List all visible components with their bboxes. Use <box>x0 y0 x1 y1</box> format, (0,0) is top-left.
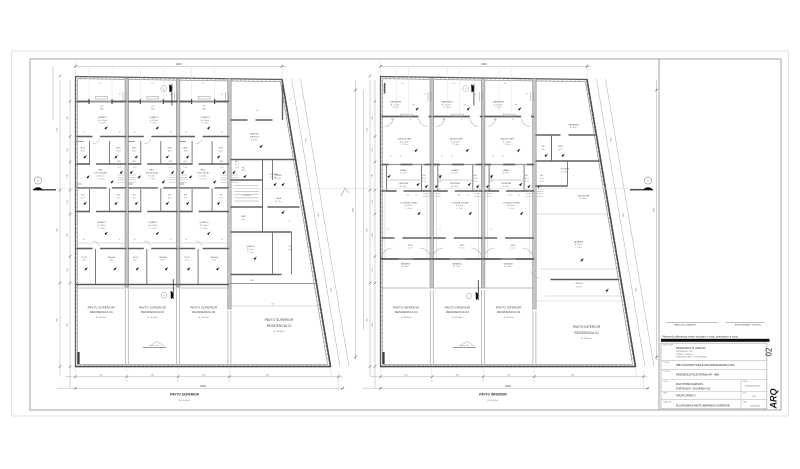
svg-text:DESP: DESP <box>558 146 564 148</box>
svg-text:206: 206 <box>412 105 415 107</box>
svg-text:ESTAR: ESTAR <box>275 174 282 177</box>
svg-text:PROJETO: PROJETO <box>663 371 671 373</box>
svg-text:GARAGEM: GARAGEM <box>493 101 504 104</box>
svg-text:*Havendo diferença entre escal: *Havendo diferença entre escalas e cota,… <box>662 334 739 338</box>
svg-text:A: 4,60m²: A: 4,60m² <box>199 175 207 178</box>
svg-text:90: 90 <box>526 94 528 96</box>
svg-text:150: 150 <box>504 83 507 85</box>
svg-text:SERVIÇO: SERVIÇO <box>250 137 259 139</box>
svg-text:26: 26 <box>388 229 390 231</box>
svg-text:P: 2,60m: P: 2,60m <box>98 228 106 230</box>
svg-text:150: 150 <box>452 83 455 85</box>
svg-text:A: 4,60m²: A: 4,60m² <box>97 175 105 178</box>
svg-text:QUARTO: QUARTO <box>199 221 209 224</box>
svg-text:36: 36 <box>502 156 504 158</box>
svg-text:A: 18,6m²: A: 18,6m² <box>570 126 578 129</box>
svg-text:P: 2,60m: P: 2,60m <box>575 247 582 249</box>
svg-text:140: 140 <box>67 174 69 177</box>
svg-text:ORCATO/PANTO: ORCATO/PANTO <box>676 394 696 397</box>
svg-text:FRANCISCO R. ARAUJO: FRANCISCO R. ARAUJO <box>676 346 706 350</box>
svg-text:GARAGEM: GARAGEM <box>568 123 579 126</box>
svg-text:A:2,4: A:2,4 <box>219 149 223 152</box>
svg-text:90: 90 <box>475 94 477 96</box>
svg-text:RESIDENCIA 01: RESIDENCIA 01 <box>574 331 599 335</box>
svg-text:A:2,4: A:2,4 <box>81 149 85 152</box>
svg-text:CIRCULAÇÃO: CIRCULAÇÃO <box>145 172 159 175</box>
svg-text:12x18: 12x18 <box>184 167 188 169</box>
svg-text:ESCADA: ESCADA <box>243 194 251 197</box>
svg-text:QUARTO: QUARTO <box>97 221 107 224</box>
svg-text:A: 8,9m²: A: 8,9m² <box>275 177 282 180</box>
svg-text:CIRCULAÇÃO: CIRCULAÇÃO <box>94 172 108 175</box>
svg-text:A: 36,40m²: A: 36,40m² <box>504 316 514 319</box>
svg-text:GARAGEM: GARAGEM <box>390 101 401 104</box>
svg-text:A: 36,40m²: A: 36,40m² <box>199 316 209 319</box>
svg-text:P: 2,60m: P: 2,60m <box>200 228 208 230</box>
svg-text:35: 35 <box>177 380 179 382</box>
svg-text:2340: 2340 <box>505 384 511 388</box>
svg-text:PAVTO SUPERIOR: PAVTO SUPERIOR <box>170 392 200 396</box>
svg-text:206: 206 <box>271 304 274 306</box>
svg-text:PAVTO SUPERIOR: PAVTO SUPERIOR <box>190 306 218 310</box>
svg-text:A: 4,60m²: A: 4,60m² <box>148 175 156 178</box>
svg-text:DESP.: DESP. <box>241 216 247 218</box>
svg-text:P: 2,60m: P: 2,60m <box>150 123 158 125</box>
svg-text:P: 2,60m: P: 2,60m <box>452 144 459 146</box>
svg-text:90: 90 <box>461 119 463 121</box>
svg-text:PAVTO INFERIOR: PAVTO INFERIOR <box>496 306 522 310</box>
svg-text:124: 124 <box>67 200 69 203</box>
svg-text:02: 02 <box>765 347 774 356</box>
svg-text:A: 8,9m²: A: 8,9m² <box>561 170 568 173</box>
svg-text:A: 36,40m²: A: 36,40m² <box>452 316 462 319</box>
svg-text:COZINHA / ESTAR: COZINHA / ESTAR <box>400 201 418 204</box>
svg-text:36: 36 <box>134 132 136 134</box>
svg-text:140: 140 <box>372 174 374 177</box>
svg-text:P: 2,60m: P: 2,60m <box>495 107 502 109</box>
svg-text:90: 90 <box>410 119 412 121</box>
svg-text:90: 90 <box>221 94 223 96</box>
svg-text:CLIENTE: CLIENTE <box>663 362 670 364</box>
svg-text:A: 8,40m²: A: 8,40m² <box>507 204 515 207</box>
svg-text:RESIDENCIA 04: RESIDENCIA 04 <box>90 310 113 314</box>
svg-text:36: 36 <box>83 239 85 241</box>
svg-text:90: 90 <box>424 94 426 96</box>
svg-text:19/06/2023: 19/06/2023 <box>750 405 761 407</box>
svg-text:36: 36 <box>83 132 85 134</box>
svg-text:ESC.: ESC. <box>422 175 426 177</box>
svg-text:124: 124 <box>372 200 374 203</box>
svg-text:ARQ: ARQ <box>769 389 779 410</box>
svg-text:130: 130 <box>67 268 69 271</box>
svg-text:P: 2,60m: P: 2,60m <box>200 179 207 181</box>
svg-text:RESIDENCIA 01: RESIDENCIA 01 <box>267 324 292 328</box>
svg-text:SERVIÇO: SERVIÇO <box>575 283 584 285</box>
svg-text:130: 130 <box>372 268 374 271</box>
svg-text:P: 2,60m: P: 2,60m <box>148 179 155 181</box>
svg-text:AREA DE: AREA DE <box>250 133 259 136</box>
svg-text:35: 35 <box>534 380 536 382</box>
svg-text:835: 835 <box>372 323 374 326</box>
svg-text:VARANDA: VARANDA <box>574 240 584 243</box>
svg-text:WCXX: WCXX <box>184 257 190 259</box>
svg-text:26: 26 <box>441 156 443 158</box>
svg-text:12x18: 12x18 <box>525 181 529 183</box>
svg-text:A: 350,00m²: A: 350,00m² <box>179 399 190 402</box>
svg-text:150: 150 <box>202 83 205 85</box>
svg-text:835: 835 <box>67 323 69 326</box>
svg-text:RESIDENCIA MULTIFAMILIAR - IMB: RESIDENCIA MULTIFAMILIAR - IMB <box>676 373 719 377</box>
svg-text:A: 58,60m²: A: 58,60m² <box>274 330 285 333</box>
svg-text:12x18: 12x18 <box>422 181 426 183</box>
svg-text:ESC.: ESC. <box>169 161 173 163</box>
svg-text:206: 206 <box>463 105 466 107</box>
svg-text:SALA ESTAR: SALA ESTAR <box>449 137 463 140</box>
svg-text:206: 206 <box>457 195 460 197</box>
svg-text:CIRC.: CIRC. <box>250 280 255 282</box>
svg-text:RUA THOMAS EDISON: RUA THOMAS EDISON <box>676 383 703 386</box>
svg-text:VARANDA: VARANDA <box>452 262 462 265</box>
svg-text:206: 206 <box>391 119 394 121</box>
svg-text:A: 9,28m²: A: 9,28m² <box>97 224 106 227</box>
svg-text:90: 90 <box>518 195 520 197</box>
svg-text:PAVTO SUPERIOR: PAVTO SUPERIOR <box>139 306 167 310</box>
svg-text:SACADA: SACADA <box>159 256 167 259</box>
svg-text:ESC.: ESC. <box>235 161 239 163</box>
svg-text:PAVTO INFERIOR: PAVTO INFERIOR <box>479 392 507 396</box>
svg-text:PAVTO INFERIOR: PAVTO INFERIOR <box>393 306 419 310</box>
svg-text:BWC: BWC <box>183 148 188 150</box>
svg-text:90: 90 <box>416 195 418 197</box>
svg-text:A: 13,20m²: A: 13,20m² <box>391 103 401 106</box>
svg-text:IMB CONSTRUTORA E INCORPORADOR: IMB CONSTRUTORA E INCORPORADORA LTDA <box>676 363 735 367</box>
svg-text:26: 26 <box>439 229 441 231</box>
svg-text:ESC.: ESC. <box>540 175 544 177</box>
svg-text:BWC: BWC <box>81 148 86 150</box>
svg-text:GARAGEM: GARAGEM <box>441 101 452 104</box>
svg-text:DESPENSA: DESPENSA <box>501 182 512 185</box>
svg-text:PROP. RESP.: PROP. RESP. <box>663 345 674 347</box>
svg-text:26: 26 <box>289 221 291 223</box>
svg-text:36: 36 <box>221 132 223 134</box>
svg-text:12x18: 12x18 <box>235 167 239 169</box>
svg-text:RESIDENCIA 02: RESIDENCIA 02 <box>192 310 215 314</box>
svg-text:P: 2,60m: P: 2,60m <box>508 208 515 210</box>
svg-text:P: 2,60m: P: 2,60m <box>201 123 209 125</box>
svg-text:A: 6,20m²: A: 6,20m² <box>251 138 259 141</box>
svg-text:A: 9,28m²: A: 9,28m² <box>201 119 210 122</box>
svg-text:A:2,4: A:2,4 <box>184 149 188 152</box>
svg-text:36: 36 <box>134 239 136 241</box>
svg-text:PAVTO SUPERIOR: PAVTO SUPERIOR <box>88 306 116 310</box>
svg-text:A: 13,20m²: A: 13,20m² <box>442 103 452 106</box>
svg-text:206: 206 <box>372 116 374 119</box>
svg-text:A:1,9: A:1,9 <box>117 196 121 199</box>
svg-text:A: 5,20m²: A: 5,20m² <box>453 265 461 268</box>
svg-text:2340: 2340 <box>481 62 487 66</box>
svg-text:12x18: 12x18 <box>474 181 478 183</box>
svg-text:WCXX: WCXX <box>82 257 88 259</box>
svg-text:220: 220 <box>203 105 206 107</box>
svg-text:206: 206 <box>372 233 374 236</box>
svg-text:36: 36 <box>119 239 121 241</box>
svg-text:QUARTO: QUARTO <box>149 116 159 119</box>
svg-text:CREA-CE: 123456-D: CREA-CE: 123456-D <box>676 353 694 356</box>
svg-text:HALL: HALL <box>149 169 154 172</box>
svg-text:HALL: HALL <box>98 169 103 172</box>
svg-text:ESC.: ESC. <box>220 161 224 163</box>
svg-text:A:1,9: A:1,9 <box>81 196 85 199</box>
svg-text:XXXXXXXXXXX: XXXXXXXXXXX <box>745 385 760 387</box>
svg-text:26: 26 <box>290 99 292 101</box>
svg-text:P: 2,60m: P: 2,60m <box>443 107 450 109</box>
svg-text:P: 2,60m: P: 2,60m <box>504 144 511 146</box>
svg-text:ESC.: ESC. <box>474 175 478 177</box>
svg-text:P: 2,60m: P: 2,60m <box>97 179 104 181</box>
svg-text:150: 150 <box>401 83 404 85</box>
svg-text:BWC: BWC <box>132 148 137 150</box>
svg-text:SACADA: SACADA <box>210 256 218 259</box>
svg-text:ESC.: ESC. <box>525 175 529 177</box>
svg-text:12x18: 12x18 <box>220 167 224 169</box>
svg-text:ESC.: ESC. <box>184 161 188 163</box>
svg-text:SALA ESTAR: SALA ESTAR <box>578 194 590 197</box>
svg-text:A: 5,20m²: A: 5,20m² <box>504 265 512 268</box>
svg-text:A: 9,28m²: A: 9,28m² <box>200 224 209 227</box>
svg-text:A: 36,40m²: A: 36,40m² <box>401 316 411 319</box>
svg-text:SERV.: SERV. <box>459 245 464 247</box>
svg-text:26: 26 <box>390 156 392 158</box>
svg-text:A:1,9: A:1,9 <box>184 196 188 199</box>
svg-text:HALL: HALL <box>201 169 206 172</box>
svg-text:206: 206 <box>67 233 69 236</box>
svg-text:P: 2,60m: P: 2,60m <box>457 208 464 210</box>
svg-text:SALA: SALA <box>276 197 282 200</box>
svg-text:QUARTO: QUARTO <box>246 245 255 248</box>
svg-text:220: 220 <box>100 105 103 107</box>
svg-text:124: 124 <box>372 148 374 151</box>
svg-text:A: 9,6m²: A: 9,6m² <box>247 248 254 251</box>
svg-text:ESC.: ESC. <box>117 161 121 163</box>
svg-text:RESIDENCIA 02: RESIDENCIA 02 <box>497 310 520 314</box>
svg-text:220: 220 <box>151 105 154 107</box>
svg-text:A: 7,4m²: A: 7,4m² <box>275 200 282 203</box>
svg-text:P: 2,60m: P: 2,60m <box>405 208 412 210</box>
svg-text:LAVABO: LAVABO <box>451 169 459 172</box>
svg-text:A: 13,20m²: A: 13,20m² <box>493 103 503 106</box>
svg-text:35: 35 <box>482 380 484 382</box>
svg-text:A: 9,28m²: A: 9,28m² <box>149 119 158 122</box>
svg-text:ESC.: ESC. <box>743 393 747 395</box>
svg-text:xxx: xxx <box>256 110 259 112</box>
svg-text:36: 36 <box>119 132 121 134</box>
svg-text:12x18: 12x18 <box>117 167 121 169</box>
svg-text:RESIDENCIA 04: RESIDENCIA 04 <box>395 310 418 314</box>
svg-text:BWC: BWC <box>168 148 173 150</box>
svg-text:2340: 2340 <box>176 62 182 66</box>
svg-text:SERV.: SERV. <box>511 245 516 247</box>
svg-text:A: 8,20m²: A: 8,20m² <box>575 243 583 246</box>
svg-text:RUA DAS FLORES, 120 FORTALEZA: RUA DAS FLORES, 120 FORTALEZA <box>676 356 707 359</box>
svg-text:90: 90 <box>467 195 469 197</box>
svg-text:PLANTA BAIXA PAVTO BERRADIO SU: PLANTA BAIXA PAVTO BERRADIO SUPERIOR <box>676 404 730 407</box>
svg-text:RESIDENCIA 03: RESIDENCIA 03 <box>446 310 469 314</box>
svg-text:P: 2,60m: P: 2,60m <box>99 123 107 125</box>
svg-text:A: 9,28m²: A: 9,28m² <box>148 224 157 227</box>
svg-text:SERV.: SERV. <box>408 245 413 247</box>
svg-text:WCXX: WCXX <box>133 257 139 259</box>
svg-text:A:2,4: A:2,4 <box>132 149 136 152</box>
svg-text:36: 36 <box>451 156 453 158</box>
svg-text:A: 58,60m²: A: 58,60m² <box>581 337 592 340</box>
svg-text:QUARTO: QUARTO <box>200 116 210 119</box>
svg-text:A: 350,00m²: A: 350,00m² <box>488 399 499 402</box>
svg-text:A:1,9: A:1,9 <box>132 196 136 199</box>
svg-text:90: 90 <box>119 94 121 96</box>
svg-text:PAVTO INFERIOR: PAVTO INFERIOR <box>445 306 471 310</box>
svg-text:206: 206 <box>67 116 69 119</box>
svg-text:COZINHA / ESTAR: COZINHA / ESTAR <box>503 201 521 204</box>
svg-text:206: 206 <box>406 195 409 197</box>
svg-text:CIRCULAÇÃO: CIRCULAÇÃO <box>197 172 211 175</box>
svg-text:206: 206 <box>509 195 512 197</box>
svg-text:A:2,4: A:2,4 <box>168 149 172 152</box>
svg-text:BWC: BWC <box>116 148 121 150</box>
svg-text:ENGENHEIRO CIVIL: ENGENHEIRO CIVIL <box>676 351 693 353</box>
svg-text:A:2,4: A:2,4 <box>289 248 293 251</box>
svg-text:A: 8,40m²: A: 8,40m² <box>405 204 413 207</box>
svg-text:A: 12,60m²: A: 12,60m² <box>502 140 512 143</box>
svg-text:PAVTO SUPERIOR: PAVTO SUPERIOR <box>265 318 294 322</box>
svg-text:P: 2,60m: P: 2,60m <box>392 107 399 109</box>
svg-text:35: 35 <box>229 380 231 382</box>
svg-text:35: 35 <box>126 380 128 382</box>
svg-text:DESPENSA: DESPENSA <box>399 182 410 185</box>
svg-text:PAVTO INFERIOR: PAVTO INFERIOR <box>573 325 601 329</box>
svg-text:SACADA: SACADA <box>108 256 116 259</box>
svg-text:A: 12,60m²: A: 12,60m² <box>451 140 461 143</box>
svg-text:206: 206 <box>515 105 518 107</box>
svg-text:124: 124 <box>67 148 69 151</box>
svg-text:150: 150 <box>150 83 153 85</box>
svg-text:150: 150 <box>99 83 102 85</box>
svg-text:A: 16,2m²: A: 16,2m² <box>580 197 588 200</box>
svg-text:x: x <box>344 186 345 188</box>
svg-text:P: 2,60m: P: 2,60m <box>401 144 408 146</box>
svg-text:206: 206 <box>494 119 497 121</box>
svg-text:RESPONSAVEL TECNICO: RESPONSAVEL TECNICO <box>735 324 762 327</box>
svg-text:QUARTO: QUARTO <box>148 221 158 224</box>
svg-text:FORTALEZA - ALVORADA-CE: FORTALEZA - ALVORADA-CE <box>676 388 711 391</box>
svg-text:36: 36 <box>185 132 187 134</box>
svg-text:36: 36 <box>400 156 402 158</box>
svg-text:26: 26 <box>490 229 492 231</box>
svg-text:12x18: 12x18 <box>540 181 544 183</box>
svg-text:DESPENSA: DESPENSA <box>450 182 461 185</box>
svg-text:36: 36 <box>185 239 187 241</box>
svg-text:A: 9,28m²: A: 9,28m² <box>98 119 107 122</box>
svg-text:A: 8,40m²: A: 8,40m² <box>456 204 464 207</box>
svg-text:A: 5,20m²: A: 5,20m² <box>402 265 410 268</box>
svg-text:90: 90 <box>512 119 514 121</box>
svg-text:QUARTO: QUARTO <box>98 116 108 119</box>
svg-text:COZINHA: COZINHA <box>560 168 569 171</box>
svg-text:A: 36,40m²: A: 36,40m² <box>147 316 157 319</box>
svg-text:A: 12,60m²: A: 12,60m² <box>400 140 410 143</box>
svg-text:FRANCISCO ARAUJO: FRANCISCO ARAUJO <box>674 324 697 327</box>
svg-text:12x18: 12x18 <box>169 167 173 169</box>
svg-text:2340: 2340 <box>200 384 206 388</box>
svg-text:SALA ESTAR: SALA ESTAR <box>398 137 412 140</box>
svg-text:VARANDA: VARANDA <box>401 262 411 265</box>
svg-text:36: 36 <box>170 239 172 241</box>
svg-text:A:1,9: A:1,9 <box>219 196 223 199</box>
svg-text:206: 206 <box>442 119 445 121</box>
svg-text:SALA ESTAR: SALA ESTAR <box>500 137 514 140</box>
svg-text:A:1,9: A:1,9 <box>168 196 172 199</box>
svg-text:36: 36 <box>170 132 172 134</box>
svg-text:A:2,4: A:2,4 <box>117 149 121 152</box>
svg-text:RESIDENCIA 03: RESIDENCIA 03 <box>141 310 164 314</box>
svg-text:36: 36 <box>221 239 223 241</box>
svg-text:35: 35 <box>431 380 433 382</box>
svg-text:BWC: BWC <box>219 148 224 150</box>
svg-text:P: 2,60m: P: 2,60m <box>247 252 254 254</box>
svg-text:P: 2,60m: P: 2,60m <box>149 228 157 230</box>
svg-text:VARANDA: VARANDA <box>504 262 514 265</box>
svg-text:12x18: 12x18 <box>132 167 136 169</box>
svg-text:ESC.: ESC. <box>132 161 136 163</box>
svg-text:26: 26 <box>492 156 494 158</box>
svg-text:A:2,3: A:2,3 <box>242 169 246 172</box>
svg-text:COZINHA / ESTAR: COZINHA / ESTAR <box>451 201 469 204</box>
svg-text:A: 36,40m²: A: 36,40m² <box>96 316 106 319</box>
svg-text:LAVABO: LAVABO <box>503 169 511 172</box>
svg-text:LAVABO: LAVABO <box>400 169 408 172</box>
